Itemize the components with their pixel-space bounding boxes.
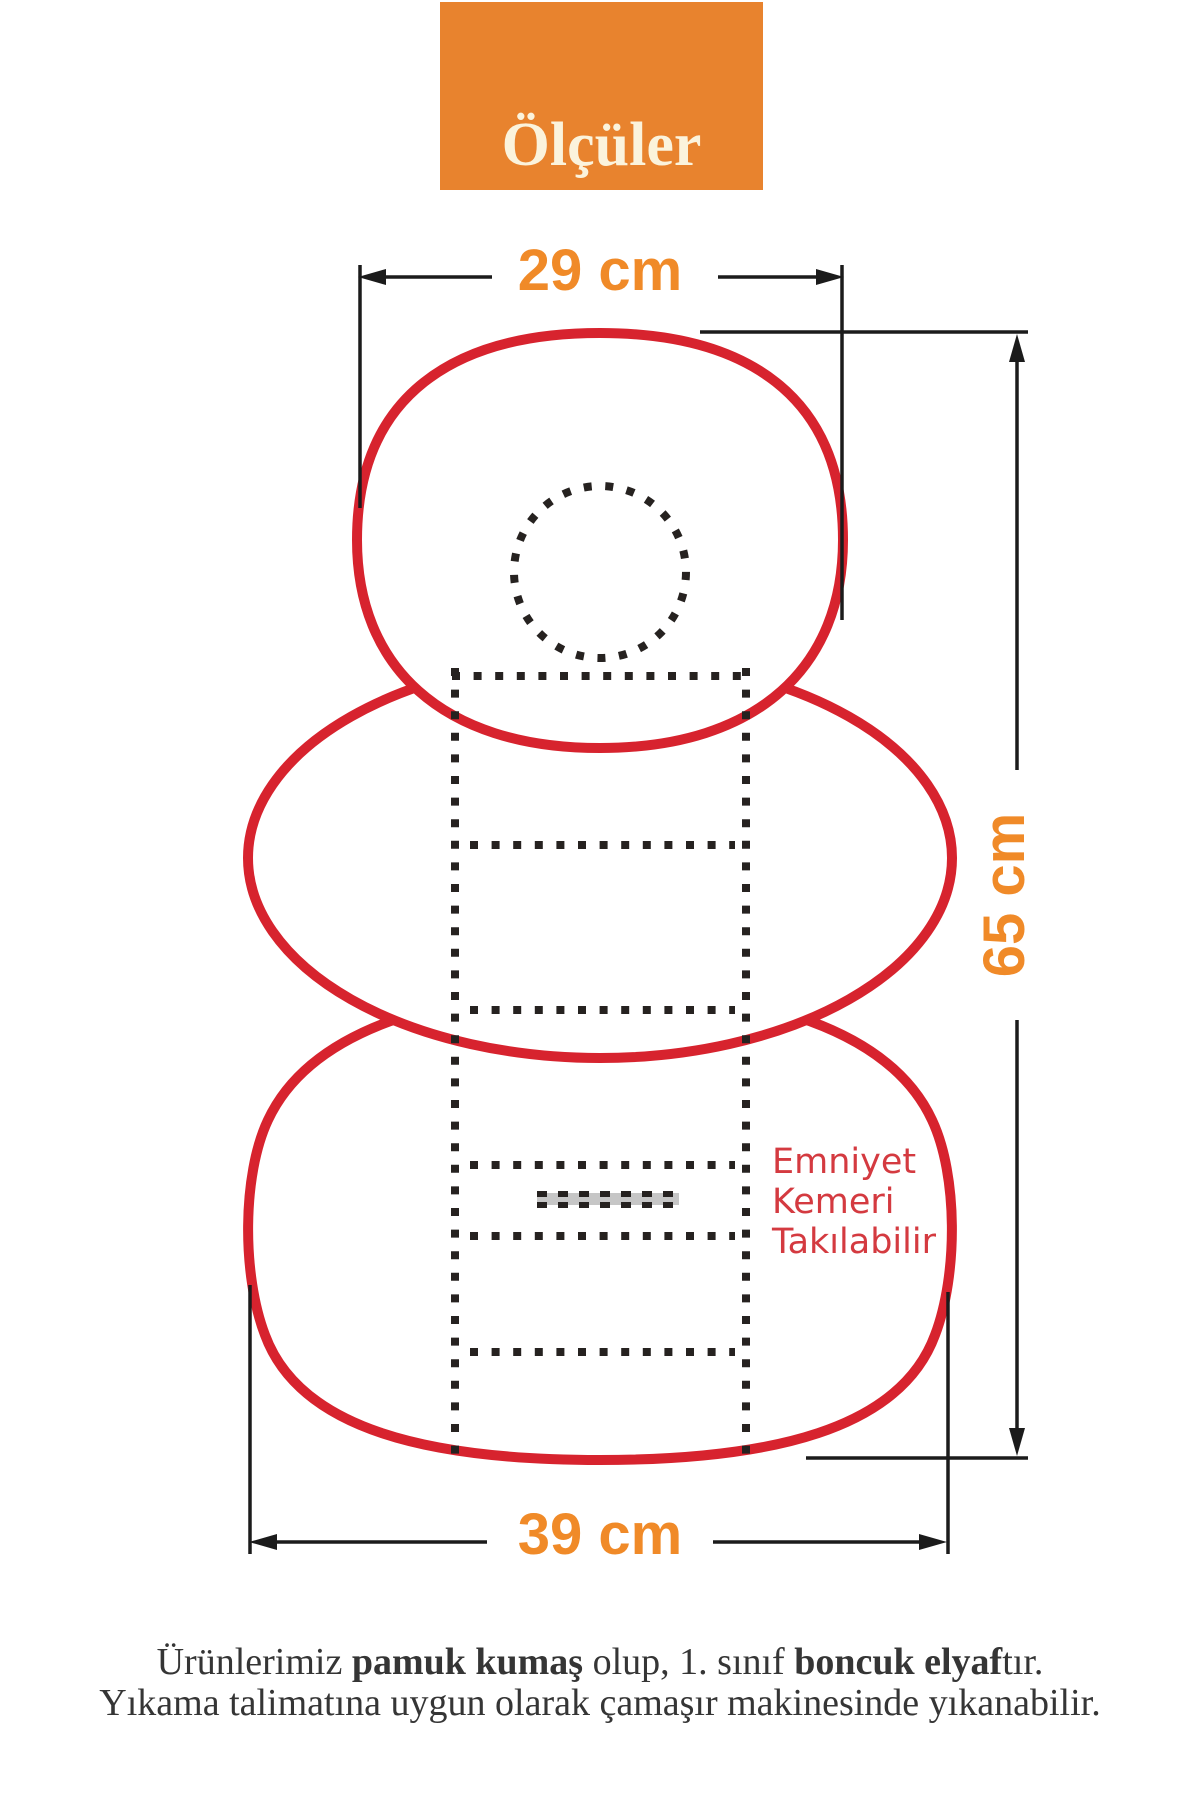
- belt-note: Emniyet Kemeri Takılabilir: [772, 1142, 936, 1262]
- diagram-page: Ölçüler 29 cm 65 cm 39 cm Emniyet Kemeri…: [0, 0, 1200, 1800]
- footer-text: Ürünlerimiz pamuk kumaş olup, 1. sınıf b…: [0, 1642, 1200, 1724]
- belt-note-line-2: Kemeri: [772, 1182, 936, 1222]
- footer-line-1: Ürünlerimiz pamuk kumaş olup, 1. sınıf b…: [0, 1642, 1200, 1683]
- dim-65-arrow-bottom: [1009, 1428, 1025, 1456]
- headrest-outline: [357, 333, 843, 748]
- belt-note-line-1: Emniyet: [772, 1142, 936, 1182]
- dim-39-arrow-left: [249, 1534, 277, 1550]
- dim-top-width-label: 29 cm: [518, 242, 682, 300]
- dim-39-arrow-right: [919, 1534, 947, 1550]
- dim-29-arrow-right: [816, 269, 844, 285]
- dim-bottom-width-label: 39 cm: [518, 1506, 682, 1564]
- dim-29-arrow-left: [358, 269, 386, 285]
- belt-note-line-3: Takılabilir: [772, 1222, 936, 1262]
- page-title: Ölçüler: [502, 114, 702, 176]
- footer-line-2: Yıkama talimatına uygun olarak çamaşır m…: [0, 1683, 1200, 1724]
- dim-65-arrow-top: [1009, 334, 1025, 362]
- title-box: Ölçüler: [440, 2, 763, 190]
- dim-height-label: 65 cm: [976, 813, 1034, 977]
